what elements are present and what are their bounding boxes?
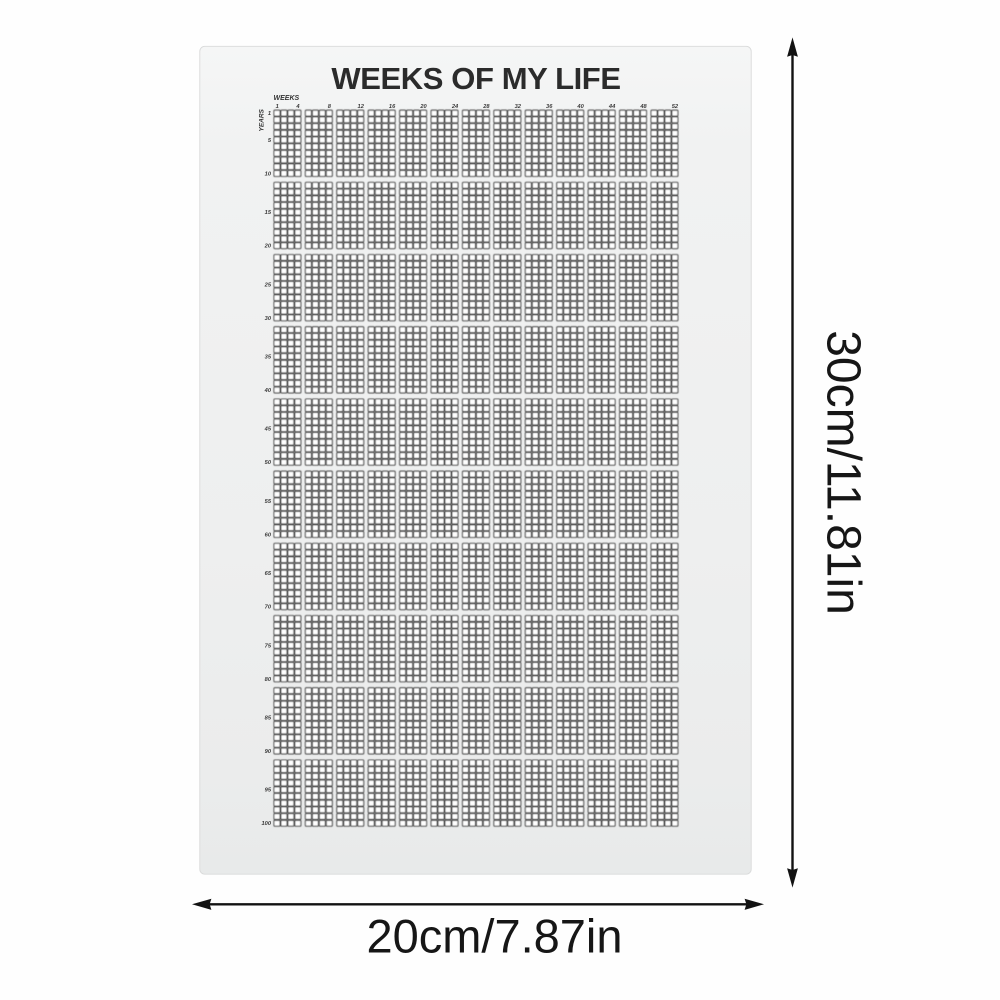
svg-text:40: 40: [264, 388, 272, 394]
svg-text:60: 60: [265, 532, 272, 538]
svg-text:1: 1: [268, 111, 271, 117]
svg-text:YEARS: YEARS: [259, 108, 266, 131]
svg-text:30cm/11.81in: 30cm/11.81in: [817, 330, 870, 615]
svg-text:WEEKS: WEEKS: [274, 95, 300, 102]
svg-text:90: 90: [265, 749, 272, 755]
svg-text:16: 16: [389, 104, 396, 110]
svg-text:20cm/7.87in: 20cm/7.87in: [366, 910, 622, 963]
svg-text:65: 65: [265, 571, 272, 577]
svg-text:45: 45: [264, 427, 272, 433]
svg-text:50: 50: [265, 460, 272, 466]
svg-text:75: 75: [265, 643, 272, 649]
svg-text:12: 12: [358, 104, 365, 110]
svg-text:36: 36: [546, 104, 553, 110]
svg-text:100: 100: [262, 821, 272, 827]
svg-text:10: 10: [265, 171, 272, 177]
svg-text:48: 48: [639, 104, 647, 110]
svg-text:28: 28: [482, 104, 490, 110]
svg-text:95: 95: [265, 788, 272, 794]
svg-text:80: 80: [265, 677, 272, 683]
svg-text:WEEKS OF MY LIFE: WEEKS OF MY LIFE: [331, 61, 620, 96]
svg-text:40: 40: [576, 104, 584, 110]
svg-text:30: 30: [265, 316, 272, 322]
svg-text:20: 20: [264, 244, 272, 250]
svg-text:24: 24: [451, 104, 459, 110]
svg-text:35: 35: [265, 355, 272, 361]
svg-text:52: 52: [672, 104, 679, 110]
svg-text:15: 15: [265, 210, 272, 216]
svg-text:32: 32: [515, 104, 522, 110]
svg-text:85: 85: [265, 716, 272, 722]
svg-text:55: 55: [265, 499, 272, 505]
svg-text:44: 44: [608, 104, 616, 110]
svg-text:1: 1: [276, 104, 279, 110]
svg-text:70: 70: [265, 605, 272, 611]
svg-text:25: 25: [264, 282, 272, 288]
svg-text:20: 20: [419, 104, 427, 110]
